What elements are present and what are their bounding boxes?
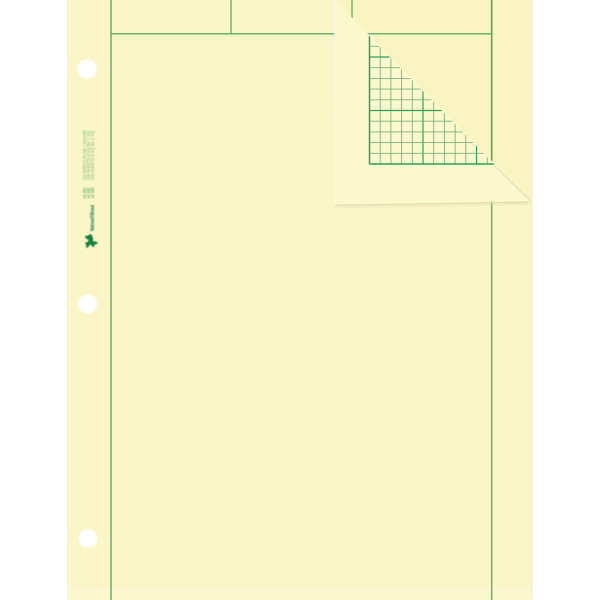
svg-text:42-389: 42-389 xyxy=(90,187,95,198)
svg-text:National®Brand: National®Brand xyxy=(89,205,96,231)
svg-text:200 SHEETS 5 SQ./IN. 1 SQ.: 200 SHEETS 5 SQ./IN. 1 SQ. xyxy=(90,130,95,180)
